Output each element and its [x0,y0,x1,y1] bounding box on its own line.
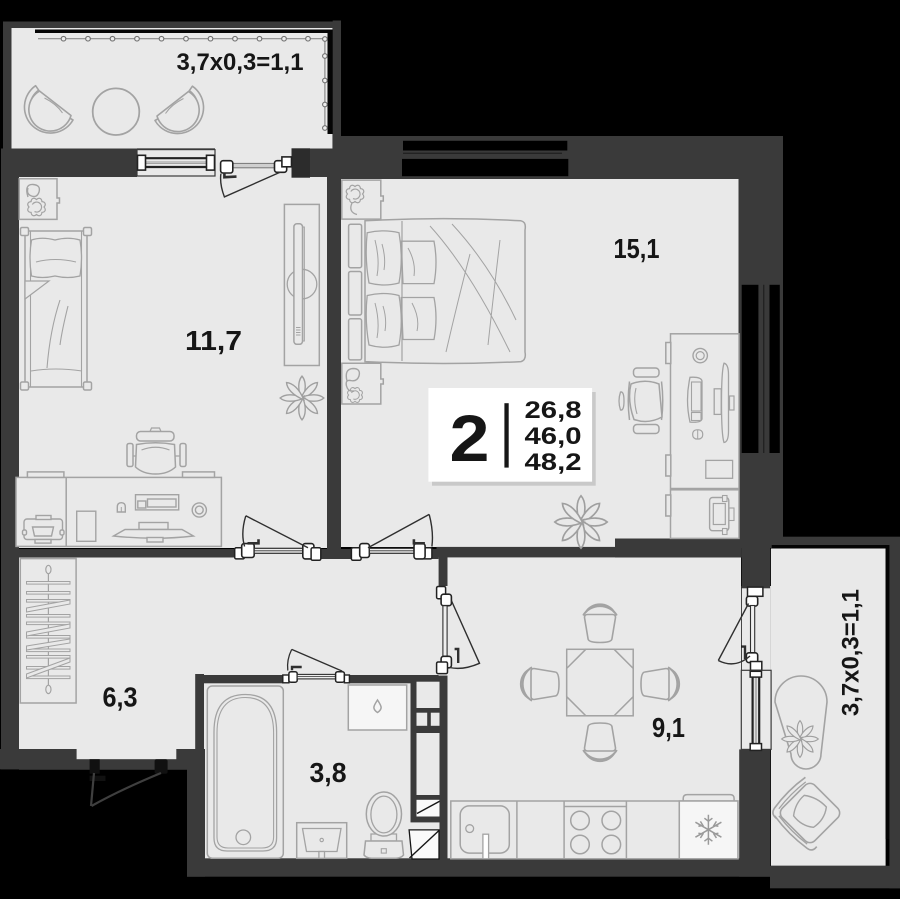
svg-text:3,7x0,3=1,1: 3,7x0,3=1,1 [838,589,865,716]
svg-text:26,8: 26,8 [525,397,582,424]
svg-text:2: 2 [450,401,490,475]
svg-text:11,7: 11,7 [185,325,242,356]
svg-text:46,0: 46,0 [525,423,582,450]
svg-text:15,1: 15,1 [614,233,660,264]
svg-text:3,7x0,3=1,1: 3,7x0,3=1,1 [177,49,304,76]
svg-text:48,2: 48,2 [525,449,582,476]
svg-text:3,8: 3,8 [310,757,347,788]
svg-text:9,1: 9,1 [652,712,685,743]
svg-text:6,3: 6,3 [103,682,138,713]
